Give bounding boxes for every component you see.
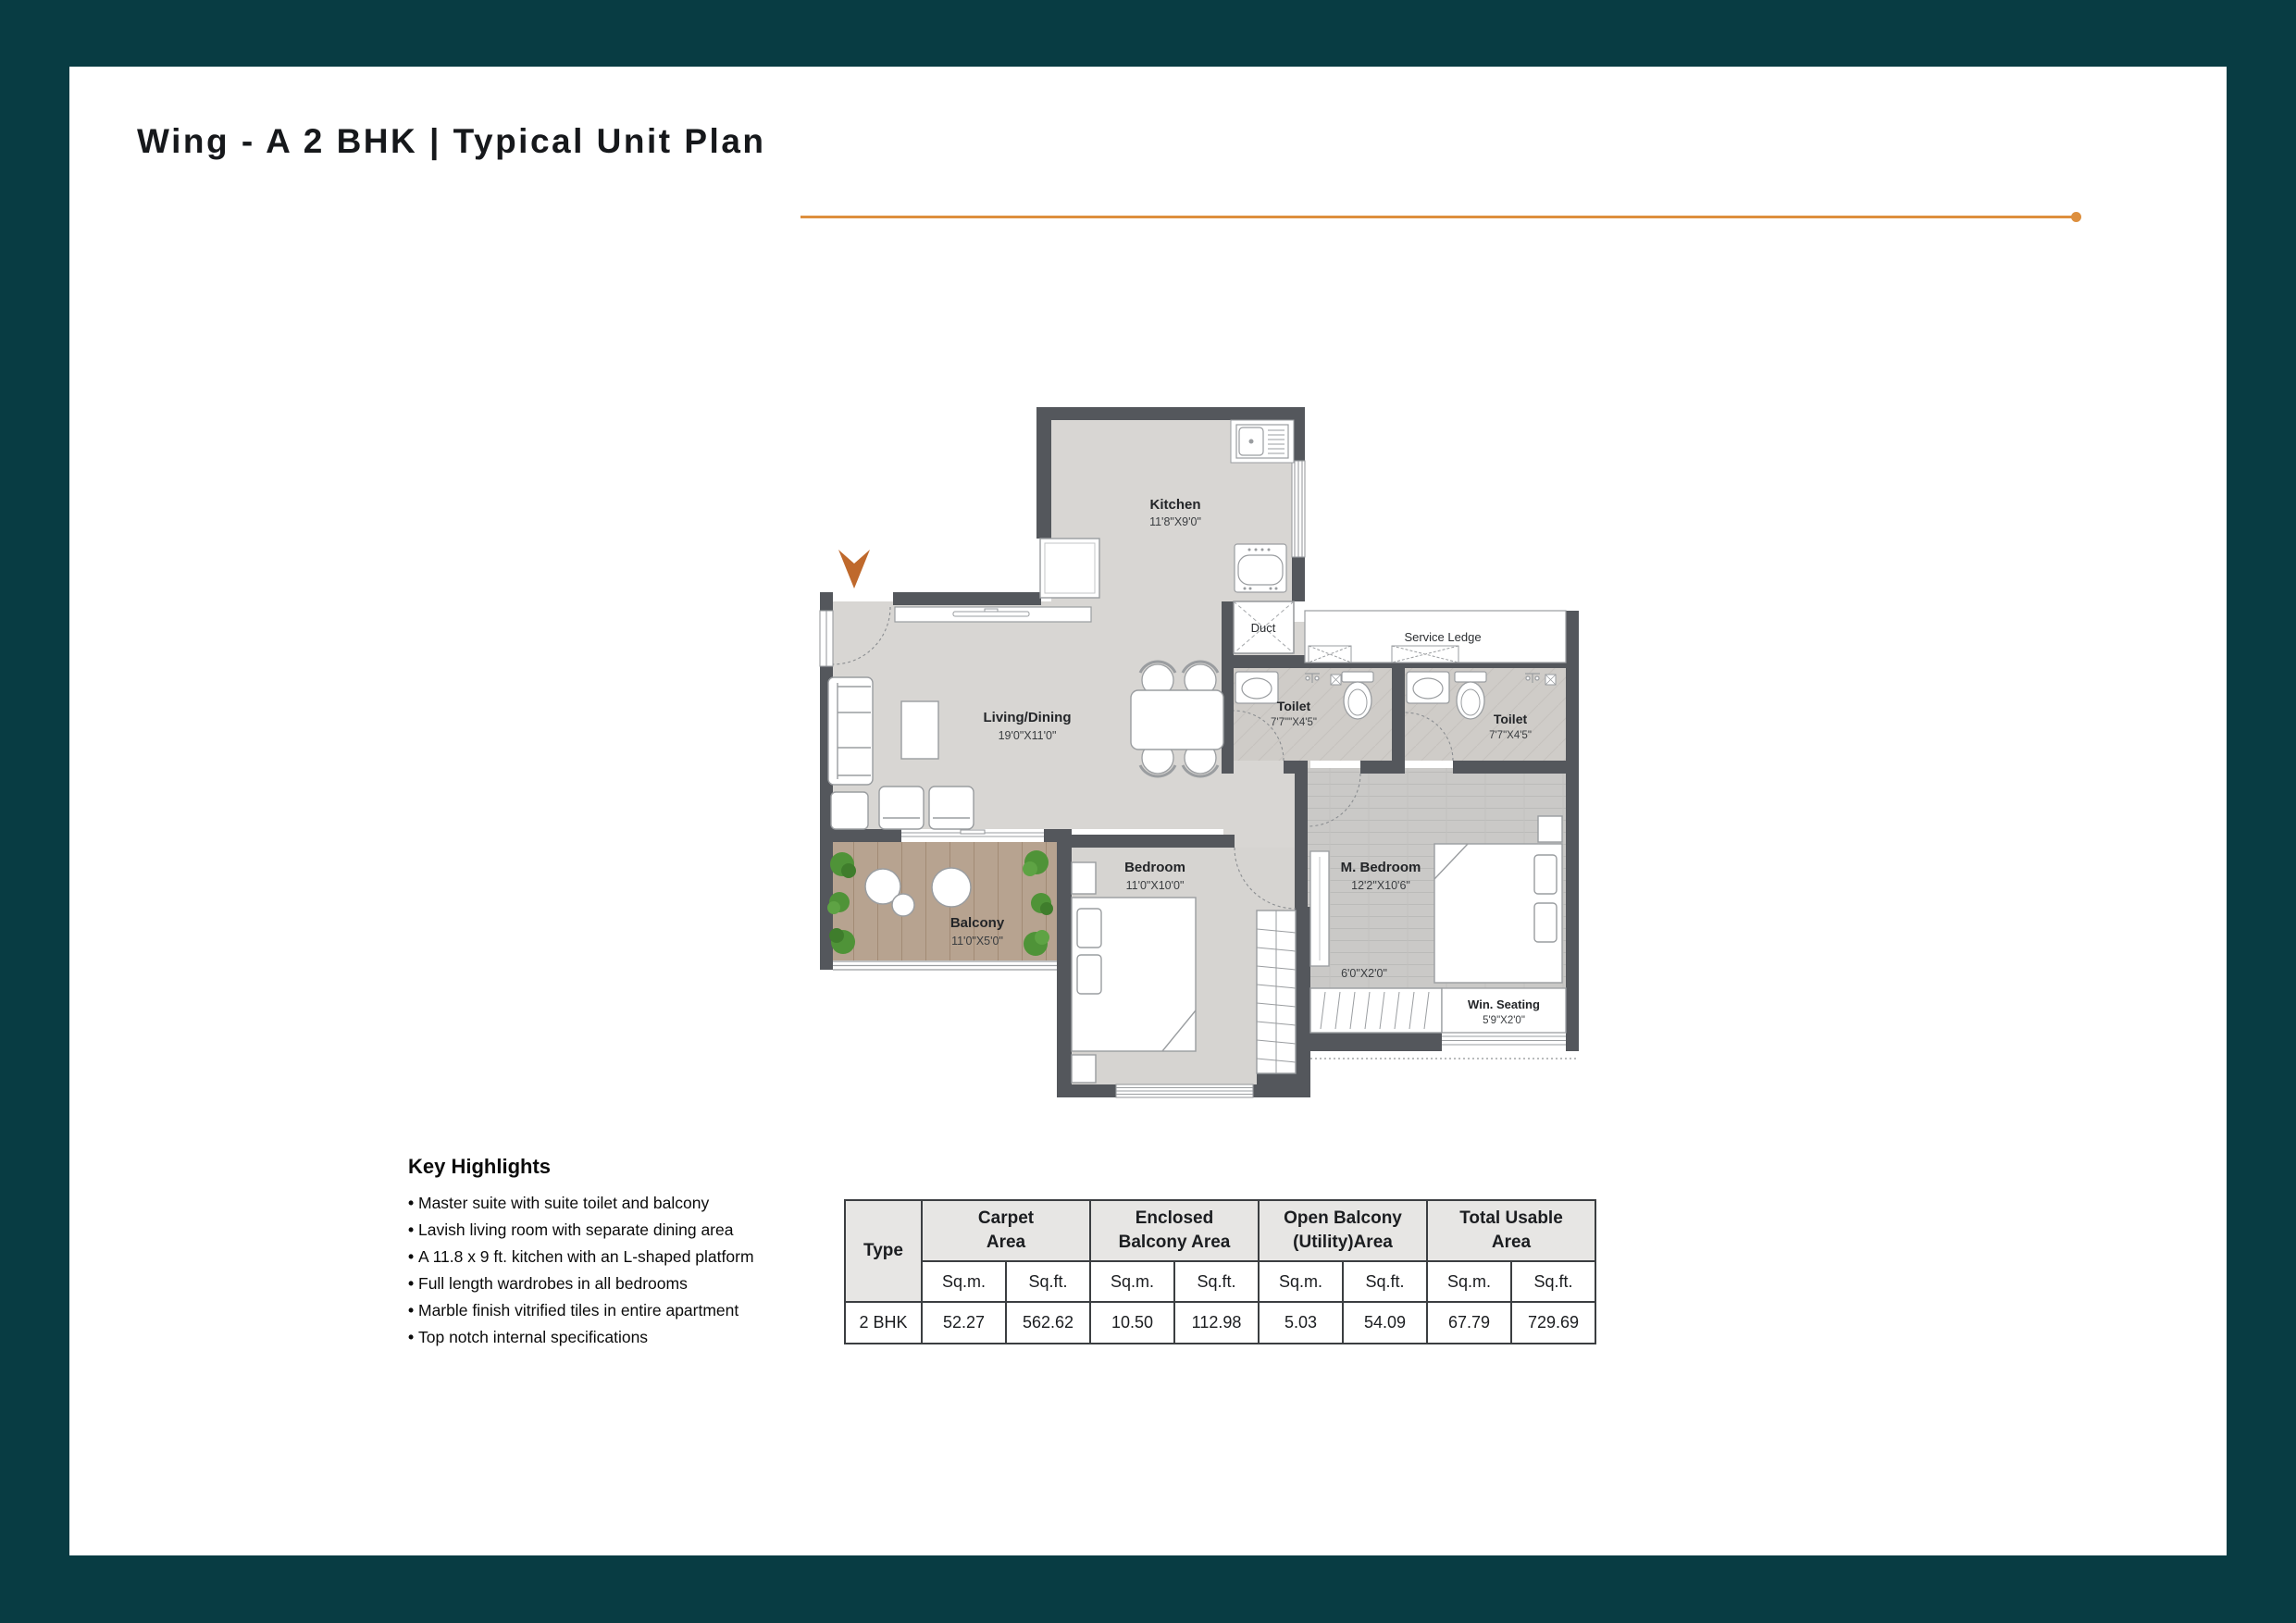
toilet2-dims: 7'7"X4'5": [1489, 730, 1532, 741]
group-line2: Balcony Area: [1091, 1231, 1258, 1255]
table-group-header-row: Type Carpet Area Enclosed Balcony Area O…: [845, 1200, 1595, 1261]
enclosed-balcony-header: Enclosed Balcony Area: [1090, 1200, 1259, 1261]
value-cell: 52.27: [922, 1302, 1006, 1344]
unit-cell: Sq.m.: [1427, 1261, 1511, 1302]
bedroom-wardrobe: [1257, 911, 1296, 1073]
coffee-table: [901, 701, 938, 759]
group-line1: Open Balcony: [1260, 1207, 1426, 1231]
value-cell: 67.79: [1427, 1302, 1511, 1344]
total-usable-header: Total Usable Area: [1427, 1200, 1595, 1261]
unit-cell: Sq.ft.: [1174, 1261, 1259, 1302]
type-header-cell: Type: [845, 1200, 922, 1302]
tv-console: [895, 607, 1091, 622]
group-line2: (Utility)Area: [1260, 1231, 1426, 1255]
entry-arrow-icon: [838, 550, 870, 588]
accent-rule-dot: [2071, 212, 2081, 222]
bedroom-dims: 11'0"X10'0": [1126, 879, 1185, 892]
side-table: [831, 792, 868, 829]
kitchen-sink: [1231, 420, 1294, 463]
kitchen-platform: [1040, 539, 1099, 598]
toilet1-label: Toilet: [1277, 699, 1311, 713]
unit-cell: Sq.ft.: [1511, 1261, 1595, 1302]
value-cell: 112.98: [1174, 1302, 1259, 1344]
group-line1: Carpet: [923, 1207, 1089, 1231]
highlight-item: A 11.8 x 9 ft. kitchen with an L-shaped …: [408, 1244, 797, 1270]
win-seating-dims: 5'9"X2'0": [1483, 1015, 1525, 1026]
highlight-item: Marble finish vitrified tiles in entire …: [408, 1297, 797, 1324]
accent-rule: [800, 216, 2078, 218]
balcony-label: Balcony: [950, 915, 1005, 931]
kitchen-label: Kitchen: [1149, 497, 1200, 513]
duct-label: Duct: [1251, 621, 1276, 635]
value-cell: 5.03: [1259, 1302, 1343, 1344]
unit-cell: Sq.m.: [1090, 1261, 1174, 1302]
master-bedroom-dims: 12'2"X10'6": [1351, 879, 1410, 892]
wardrobe-dims: 6'0"X2'0": [1341, 967, 1387, 980]
balcony-dims: 11'0"X5'0": [951, 935, 1003, 948]
value-cell: 54.09: [1343, 1302, 1427, 1344]
value-cell: 10.50: [1090, 1302, 1174, 1344]
master-wardrobe: [1310, 988, 1442, 1033]
value-cell: 562.62: [1006, 1302, 1090, 1344]
open-balcony-header: Open Balcony (Utility)Area: [1259, 1200, 1427, 1261]
unit-cell: Sq.m.: [1259, 1261, 1343, 1302]
service-ledge-label: Service Ledge: [1404, 630, 1481, 644]
key-highlights-list: Master suite with suite toilet and balco…: [408, 1190, 797, 1351]
unit-cell: Sq.ft.: [1343, 1261, 1427, 1302]
balcony-railing: [833, 960, 1059, 972]
sofa: [828, 677, 873, 785]
area-table: Type Carpet Area Enclosed Balcony Area O…: [844, 1199, 1596, 1344]
stove: [1235, 544, 1286, 592]
living-dining-label: Living/Dining: [984, 710, 1072, 725]
carpet-area-header: Carpet Area: [922, 1200, 1090, 1261]
highlight-item: Full length wardrobes in all bedrooms: [408, 1270, 797, 1297]
table-data-row: 2 BHK 52.27 562.62 10.50 112.98 5.03 54.…: [845, 1302, 1595, 1344]
group-line2: Area: [923, 1231, 1089, 1255]
page-title: Wing - A 2 BHK | Typical Unit Plan: [137, 122, 766, 161]
toilet2-label: Toilet: [1494, 712, 1528, 726]
highlight-item: Top notch internal specifications: [408, 1324, 797, 1351]
group-line1: Total Usable: [1428, 1207, 1595, 1231]
master-bedroom-label: M. Bedroom: [1341, 860, 1421, 875]
key-highlights: Key Highlights Master suite with suite t…: [408, 1155, 797, 1351]
unit-cell: Sq.ft.: [1006, 1261, 1090, 1302]
unit-cell: Sq.m.: [922, 1261, 1006, 1302]
living-dining-dims: 19'0"X11'0": [999, 729, 1057, 742]
key-highlights-heading: Key Highlights: [408, 1155, 797, 1179]
kitchen-dims: 11'8"X9'0": [1149, 515, 1201, 528]
toilet1-dims: 7'7""X4'5": [1271, 717, 1317, 728]
unit-type-cell: 2 BHK: [845, 1302, 922, 1344]
group-line1: Enclosed: [1091, 1207, 1258, 1231]
highlight-item: Lavish living room with separate dining …: [408, 1217, 797, 1244]
page-background: Wing - A 2 BHK | Typical Unit Plan: [0, 0, 2296, 1623]
bedroom-label: Bedroom: [1124, 860, 1185, 875]
table-units-row: Sq.m. Sq.ft. Sq.m. Sq.ft. Sq.m. Sq.ft. S…: [845, 1261, 1595, 1302]
value-cell: 729.69: [1511, 1302, 1595, 1344]
sheet: Wing - A 2 BHK | Typical Unit Plan: [69, 67, 2227, 1555]
win-seating-label: Win. Seating: [1468, 997, 1540, 1011]
floor-plan: Kitchen 11'8"X9'0" Living/Dining 19'0"X1…: [805, 400, 1592, 1112]
highlight-item: Master suite with suite toilet and balco…: [408, 1190, 797, 1217]
group-line2: Area: [1428, 1231, 1595, 1255]
